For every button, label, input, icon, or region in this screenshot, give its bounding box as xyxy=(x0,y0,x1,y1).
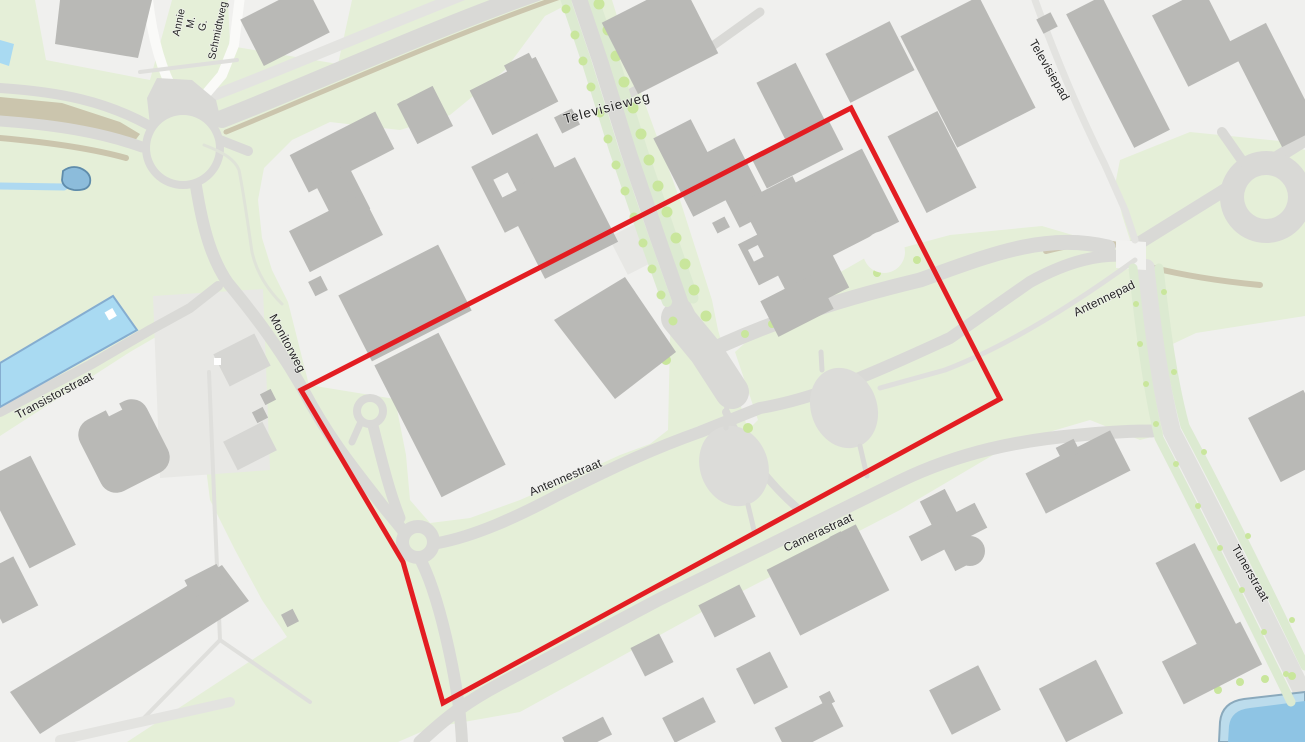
svg-text:G.: G. xyxy=(196,19,210,33)
